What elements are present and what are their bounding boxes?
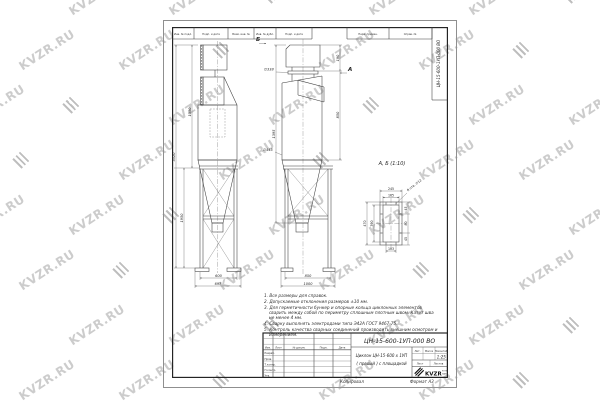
scale-value: 1:25	[437, 355, 446, 360]
kvzr-watermark-text: KVZR.RU	[66, 302, 127, 348]
top-cell-label: Инв. № дубл.	[256, 32, 274, 36]
dim-label: 80	[404, 221, 408, 225]
kvzr-watermark-icon	[62, 95, 80, 113]
dim-label: 470	[363, 220, 367, 226]
holes-note: 8 отв. ∅12	[406, 178, 422, 192]
lit-label: Лит.	[415, 349, 421, 353]
kvzr-watermark-icon	[462, 205, 480, 223]
kvzr-watermark-text: KVZR.RU	[466, 82, 527, 128]
tb-col: № докум.	[293, 346, 306, 349]
dim-label: 245	[388, 187, 394, 191]
tb-row: Н.контр.	[265, 368, 277, 372]
view-marker-a: А	[347, 67, 352, 73]
kvzr-watermark-text: KVZR.RU	[0, 192, 27, 238]
side-view: 190 850 1395 850 1000 ∅338 ∅445 Б А	[256, 37, 352, 288]
top-cell-label: Взам. инв. №	[232, 32, 250, 36]
kvzr-watermark-text: KVZR.RU	[16, 27, 77, 73]
title-block: Изм. Лист № докум. Подп. Дата Разраб. Пр…	[263, 333, 448, 378]
footer-copied: Копировал	[340, 379, 364, 384]
kvzr-watermark-icon	[512, 370, 530, 388]
detail-view: А, Б (1:10)	[363, 161, 423, 253]
footer-format: Формат А3	[410, 379, 434, 384]
note-line: 3. Для герметичности бункер и опорные ко…	[264, 305, 438, 321]
drawing-name-line2: ( правый ) с площадкой	[356, 361, 407, 366]
logo-subtext-1: КОТЕЛЬНЫЙ	[442, 370, 448, 373]
kvzr-watermark-icon	[512, 40, 530, 58]
kvzr-watermark-text: KVZR.RU	[466, 0, 527, 18]
kvzr-watermark-icon	[112, 260, 130, 278]
kvzr-watermark-text: KVZR.RU	[16, 357, 77, 403]
top-cell-label: Подп. и дата	[285, 32, 303, 36]
detail-title: А, Б (1:10)	[378, 161, 406, 167]
dim-label: 1950	[180, 213, 184, 223]
note-line: 2. Допускаемые отклонения размеров ±10 м…	[264, 299, 438, 304]
dim-label: 45	[404, 237, 408, 241]
side-stamp-cell: ЦН-15-600-1УП-000 ВО	[432, 27, 448, 100]
dim-label: 600	[215, 274, 222, 278]
tb-col: Дата	[339, 345, 346, 349]
kvzr-watermark-text: KVZR.RU	[0, 82, 27, 128]
kvzr-watermark-text: KVZR.RU	[366, 0, 427, 18]
tb-row: Утв.	[265, 374, 271, 378]
logo-subtext-2: ЗАВОД	[442, 373, 448, 376]
kvzr-watermark-text: KVZR.RU	[66, 0, 127, 18]
top-cell-label: Справ. №	[404, 32, 417, 36]
front-view: 1350 1950 3520 600 697	[172, 41, 241, 288]
dim-label: 3520	[172, 152, 176, 162]
dim-label: 45	[404, 206, 408, 210]
tb-col: Изм.	[265, 345, 271, 349]
view-marker-b: Б	[256, 37, 260, 43]
kvzr-watermark-text: KVZR.RU	[516, 137, 577, 183]
kvzr-watermark-text: KVZR.RU	[566, 192, 600, 238]
drawing-name-line1: Циклон ЦН-15-600 х 1УП	[356, 353, 408, 358]
kvzr-watermark-icon	[562, 0, 580, 4]
kvzr-watermark-text: KVZR.RU	[516, 247, 577, 293]
note-line: 4. Сварку выполнять электродами типа Э42…	[264, 321, 438, 326]
kvzr-watermark-text: KVZR.RU	[66, 192, 127, 238]
top-cell-label: Перв. примен.	[358, 32, 378, 36]
dim-label: 850	[305, 274, 312, 278]
dim-label: 1350	[188, 107, 192, 117]
mass-label: Масса	[425, 349, 434, 353]
dim-label: 165	[388, 193, 394, 197]
note-line: 5. Контроль качества сварных соединений …	[264, 327, 438, 338]
kvzr-watermark-icon	[562, 315, 580, 333]
tb-row: Разраб.	[265, 351, 275, 355]
dim-label: 697	[215, 282, 222, 286]
kvzr-watermark-text: KVZR.RU	[566, 82, 600, 128]
top-cell-label: Инв. № подл.	[174, 32, 192, 36]
scale-label: Масштаб	[435, 349, 448, 353]
tb-col: Подп.	[320, 345, 328, 349]
tb-row: Т.контр.	[265, 362, 276, 366]
top-strip: Инв. № подл. Подп. и дата Взам. инв. № И…	[172, 27, 432, 39]
dim-label: 390	[370, 220, 374, 226]
dim-label: 1395	[272, 129, 276, 139]
doc-number: ЦН-15-600-1УП-000 ВО	[364, 338, 435, 345]
dim-label: 103	[388, 247, 394, 251]
notes-block: 1. Все размеры для справок. 2. Допускаем…	[264, 293, 438, 338]
kvzr-watermark-text: KVZR.RU	[166, 0, 227, 18]
kvzr-watermark-text: KVZR.RU	[16, 247, 77, 293]
dim-label: ∅445	[263, 148, 274, 152]
tb-row: Пров.	[265, 357, 273, 361]
dim-label: 190	[336, 54, 340, 61]
note-line: 1. Все размеры для справок.	[264, 293, 438, 298]
listov-label: Листов	[434, 362, 444, 366]
side-stamp-text: ЦН-15-600-1УП-000 ВО	[436, 40, 441, 87]
top-cell-label: Подп. и дата	[202, 32, 220, 36]
kvzr-logo-text: KVZR	[425, 372, 443, 378]
kvzr-watermark-icon	[262, 0, 280, 4]
list-label: Лист	[417, 362, 424, 366]
kvzr-watermark-icon	[12, 150, 30, 168]
dim-label: ∅338	[264, 68, 275, 72]
dim-label: 1000	[304, 282, 314, 286]
tb-col: Лист	[275, 345, 282, 349]
kvzr-watermark-text: KVZR.RU	[466, 302, 527, 348]
dim-label: 850	[336, 111, 340, 118]
kvzr-logo-icon	[415, 368, 424, 377]
